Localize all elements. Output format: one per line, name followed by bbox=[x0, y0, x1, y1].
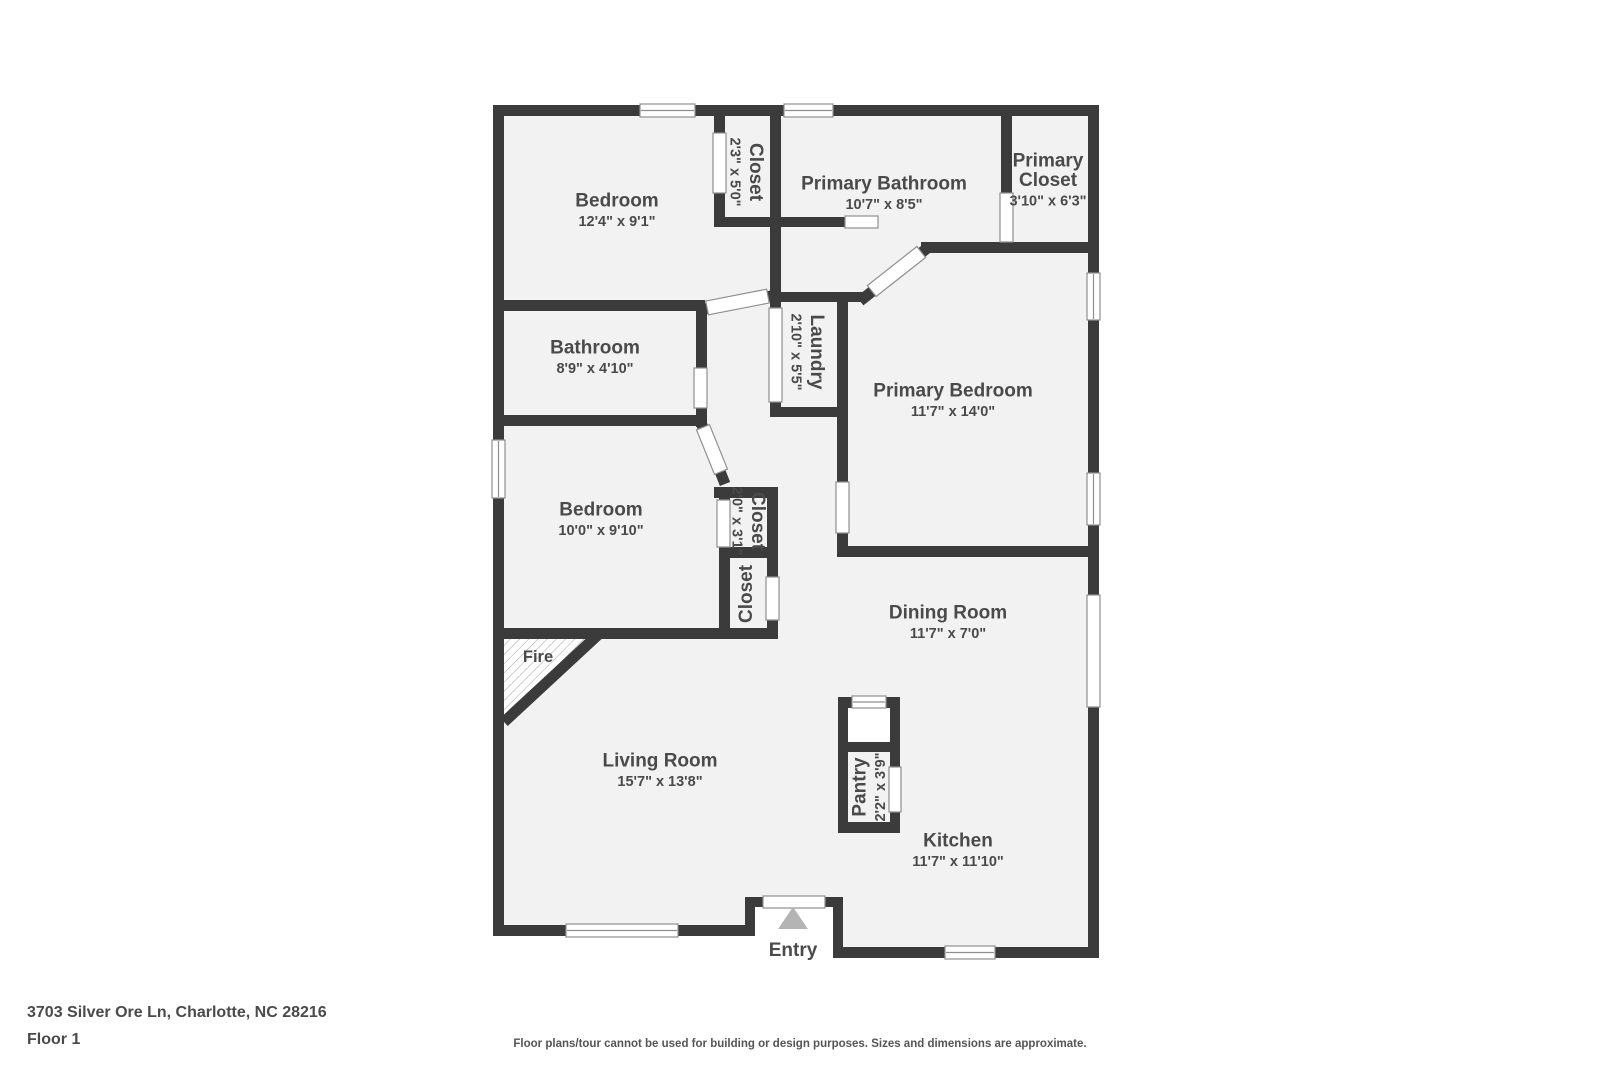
svg-text:Entry: Entry bbox=[769, 940, 818, 961]
svg-text:Fire: Fire bbox=[523, 648, 553, 666]
window bbox=[784, 104, 833, 117]
room-label-closet-top: Closet2'3" x 5'0" bbox=[726, 137, 766, 206]
svg-text:Laundry: Laundry bbox=[806, 315, 827, 390]
svg-text:2'3" x 5'0": 2'3" x 5'0" bbox=[726, 137, 742, 206]
svg-text:Living Room: Living Room bbox=[602, 750, 717, 771]
room-label-closet-hall: Closet bbox=[736, 564, 757, 623]
svg-text:Primary Bathroom: Primary Bathroom bbox=[801, 173, 967, 194]
svg-text:2'0" x 3'1": 2'0" x 3'1" bbox=[728, 486, 744, 555]
svg-text:Closet: Closet bbox=[1019, 170, 1078, 191]
window bbox=[566, 924, 678, 937]
room-label-entry: Entry bbox=[769, 940, 818, 961]
room-label-closet-bedroom: Closet2'0" x 3'1" bbox=[728, 486, 768, 555]
svg-text:11'7" x 14'0": 11'7" x 14'0" bbox=[911, 404, 995, 420]
room-label-primary-closet: PrimaryCloset3'10" x 6'3" bbox=[1009, 151, 1086, 210]
window bbox=[1087, 473, 1100, 525]
floor-plan-page: Bedroom12'4" x 9'1"Closet2'3" x 5'0"Prim… bbox=[0, 0, 1600, 1066]
svg-text:Closet: Closet bbox=[736, 564, 757, 623]
svg-text:Dining Room: Dining Room bbox=[889, 602, 1007, 623]
svg-text:Kitchen: Kitchen bbox=[923, 830, 993, 851]
svg-text:11'7" x 7'0": 11'7" x 7'0" bbox=[910, 626, 986, 642]
room-label-bedroom-top: Bedroom12'4" x 9'1" bbox=[575, 190, 658, 230]
disclaimer-text: Floor plans/tour cannot be used for buil… bbox=[0, 1038, 1600, 1050]
svg-text:10'7" x 8'5": 10'7" x 8'5" bbox=[845, 197, 922, 213]
window bbox=[852, 696, 886, 708]
svg-text:Closet: Closet bbox=[747, 492, 768, 551]
entry-arrow-icon bbox=[778, 907, 808, 929]
svg-text:15'7" x 13'8": 15'7" x 13'8" bbox=[617, 774, 702, 790]
room-label-laundry: Laundry2'10" x 5'5" bbox=[787, 313, 827, 390]
window bbox=[492, 440, 505, 498]
room-label-living-room: Living Room15'7" x 13'8" bbox=[602, 750, 717, 790]
room-label-bathroom: Bathroom8'9" x 4'10" bbox=[550, 337, 640, 377]
svg-text:Bedroom: Bedroom bbox=[559, 499, 642, 520]
svg-text:2'10" x 5'5": 2'10" x 5'5" bbox=[787, 313, 803, 390]
svg-text:Pantry: Pantry bbox=[849, 757, 870, 817]
floor-plan-drawing: Bedroom12'4" x 9'1"Closet2'3" x 5'0"Prim… bbox=[0, 0, 1600, 1066]
svg-text:8'9" x 4'10": 8'9" x 4'10" bbox=[556, 361, 633, 377]
svg-text:Bathroom: Bathroom bbox=[550, 337, 640, 358]
svg-text:3'10" x 6'3": 3'10" x 6'3" bbox=[1009, 194, 1086, 210]
window bbox=[1087, 273, 1100, 320]
room-label-pantry: Pantry2'2" x 3'9" bbox=[849, 752, 889, 821]
address-text: 3703 Silver Ore Ln, Charlotte, NC 28216 bbox=[27, 1004, 327, 1022]
svg-text:2'2" x 3'9": 2'2" x 3'9" bbox=[873, 752, 889, 821]
window bbox=[640, 104, 695, 117]
svg-text:Closet: Closet bbox=[745, 143, 766, 202]
utility-nook bbox=[848, 708, 890, 742]
room-label-fireplace: Fire bbox=[523, 648, 553, 666]
svg-text:Primary Bedroom: Primary Bedroom bbox=[873, 380, 1032, 401]
room-label-bedroom-mid: Bedroom10'0" x 9'10" bbox=[558, 499, 643, 539]
svg-text:Bedroom: Bedroom bbox=[575, 190, 658, 211]
window bbox=[945, 946, 995, 959]
svg-text:10'0" x 9'10": 10'0" x 9'10" bbox=[558, 523, 643, 539]
svg-text:12'4" x 9'1": 12'4" x 9'1" bbox=[578, 214, 655, 230]
room-label-kitchen: Kitchen11'7" x 11'10" bbox=[912, 830, 1004, 870]
svg-text:11'7" x 11'10": 11'7" x 11'10" bbox=[912, 854, 1004, 870]
svg-text:Primary: Primary bbox=[1013, 151, 1084, 172]
